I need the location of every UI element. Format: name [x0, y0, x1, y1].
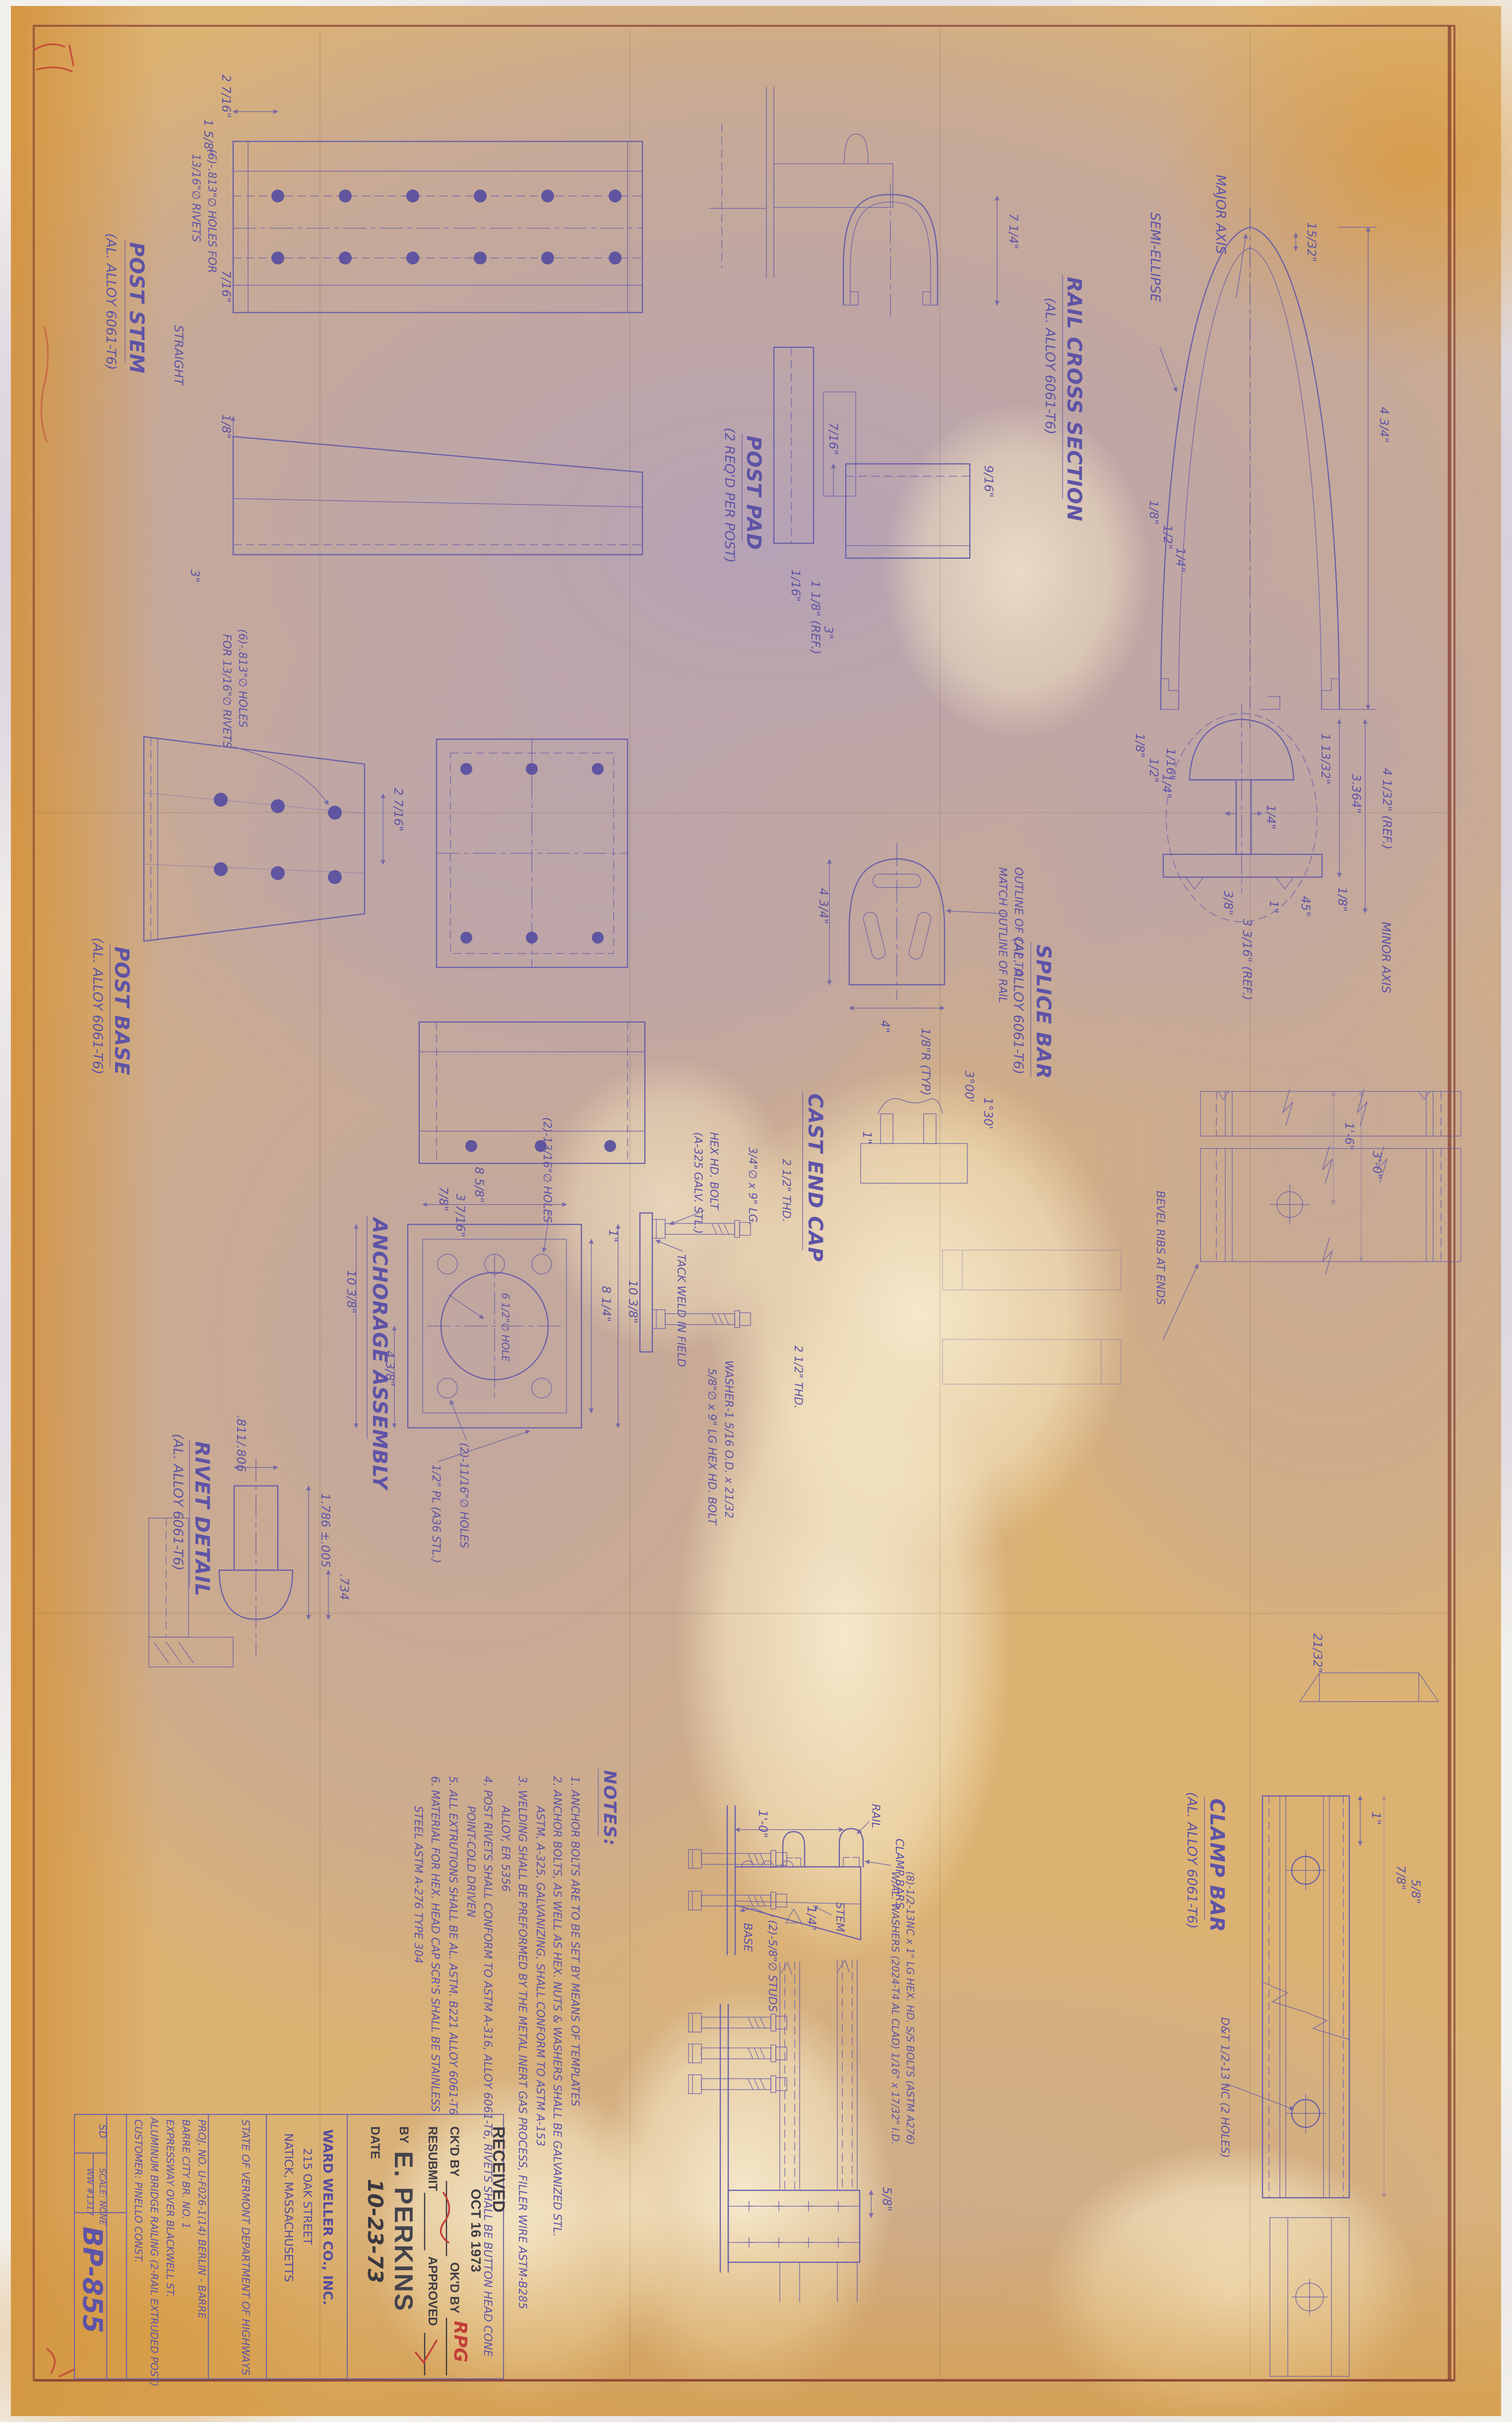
end-cap-dim-e: 1°30': [981, 1097, 995, 1129]
post-base-holes-note-1: (6)-.813"∅ HOLES: [236, 629, 249, 727]
clamp-bar-title: CLAMP BAR: [1205, 1798, 1228, 1932]
post-pad-subtitle: (2 REQ'D PER POST): [722, 428, 737, 563]
semi-ellipse-label: SEMI-ELLIPSE: [1147, 212, 1163, 302]
clamp-dim-b: 7/8": [1394, 1865, 1408, 1890]
clamp-dim-a: 1": [1369, 1812, 1383, 1825]
rivet-material: (AL. ALLOY 6061-T6): [170, 1434, 186, 1571]
note-line-1: 1. ANCHOR BOLTS ARE TO BE SET BY MEANS O…: [568, 1776, 581, 2106]
ellipse-dim-a: 15/32": [1305, 222, 1319, 262]
ellipse-dim-f: 1/4": [1160, 774, 1174, 799]
note-line-3: ASTM, A-325, GALVANIZING, SHALL CONFORM …: [534, 1805, 546, 2146]
anchorage-thd-2: 2 1/2" THD.: [792, 1345, 804, 1408]
anchorage-dim-h: 10 3/8": [344, 1270, 358, 1314]
splice-dim-g: 45°: [1299, 896, 1313, 917]
clamp-bar-material: (AL. ALLOY 6061-T6): [1184, 1792, 1199, 1929]
view-base-plate-plan: [437, 739, 628, 967]
item-line-2: CUSTOMER: PINELLO CONST.: [132, 2119, 144, 2263]
ww-number: WW #1317: [85, 2168, 95, 2216]
splice-bar-title: SPLICE BAR: [1032, 945, 1055, 1079]
post-stem-material: (AL. ALLOY 6061-T6): [103, 233, 119, 370]
splice-dim-e: 3/8": [1221, 891, 1235, 915]
clamp-tap-note: D&T 1/2-13 NC (2 HOLES): [1218, 2017, 1231, 2158]
post-pad-dim-c: 9/16": [982, 465, 996, 498]
assembly-studs-note: (2)-5/8"∅ STUDS: [766, 1920, 778, 2012]
end-cap-dim-c: 1/8"R (TYP): [919, 1028, 933, 1096]
post-base-material: (AL. ALLOY 6061-T6): [90, 938, 105, 1075]
stamp-okd-by-value: RPG: [450, 2321, 470, 2362]
post-stem-holes-note-2: 13/16"∅ RIVETS: [189, 154, 202, 242]
note-line-5: ALLOY, ER 5356: [499, 1805, 511, 1892]
stamp-received-date: OCT 16 1973: [468, 2189, 484, 2272]
company-city: NATICK, MASSACHUSETTS: [282, 2133, 295, 2282]
anchorage-dim-c: 7/8": [437, 1187, 450, 1211]
project-line-2: BARRE CITY BR. NO. 1: [180, 2119, 192, 2229]
ellipse-dim-e: 1/2": [1147, 758, 1161, 783]
assembly-dim-a: 1'-0": [756, 1810, 770, 1838]
assembly-rail-label: RAIL: [869, 1804, 882, 1828]
stamp-by-value: E. PERKINS: [389, 2151, 418, 2312]
splice-bevel-note: BEVEL RIBS AT ENDS: [1154, 1191, 1166, 1305]
anchorage-holes2-note: (2)-13/16"∅ HOLES: [541, 1117, 553, 1223]
anchorage-dim-a: 8 5/8": [472, 1167, 486, 1203]
anchorage-dim-d: 10 3/8": [626, 1280, 640, 1324]
anchorage-washer-note: WASHER-1 5/16 O.D. x 21/32: [722, 1360, 735, 1518]
notes-heading: NOTES:: [600, 1770, 620, 1847]
post-stem-straight-label: STRAIGHT: [172, 325, 186, 386]
end-cap-dim-d: 3°00': [962, 1071, 976, 1102]
ellipse-dim-b: 4 3/4": [1377, 407, 1391, 443]
anchorage-dim-b: 3 7/16": [453, 1194, 467, 1237]
splice-dim-f: 1/8": [1335, 887, 1349, 912]
post-stem-dim-a: 2 7/16": [219, 74, 233, 118]
splice-dim-b: 3.364": [1349, 774, 1363, 814]
blueprint-sheet: 2 7/16" 1 5/8" 7/16" (6)-.813"∅ HOLES FO…: [0, 0, 1512, 2422]
rivet-dim-b: 1.786 ±.005: [318, 1493, 332, 1568]
end-cap-outline-note-2: MATCH OUTLINE OF RAIL: [996, 867, 1008, 1003]
note-line-2: 2. ANCHOR BOLTS, AS WELL AS HEX. NUTS & …: [551, 1776, 563, 2237]
post-stem-dim-e: 1/8": [219, 414, 233, 439]
anchorage-dim-e: 8 1/4": [599, 1286, 613, 1322]
rivet-dim-a: .811/.806: [234, 1415, 248, 1472]
splice-plan-dim-j: 1'-6": [1342, 1122, 1356, 1150]
rail-section-material: (AL. ALLOY 6061-T6): [1042, 298, 1058, 435]
post-pad-dim-a: 7/16": [826, 423, 840, 455]
note-line-8: 5. ALL EXTRUTIONS SHALL BE AL. ASTM. B22…: [446, 1776, 459, 2115]
anchorage-thd: 2 1/2" THD.: [780, 1159, 792, 1222]
rail-section-title: RAIL CROSS SECTION: [1063, 277, 1085, 521]
clamp-dim-c: 5/8": [1409, 1879, 1423, 1904]
post-base-holes-note-2: FOR 13/16"∅ RIVETS: [220, 634, 233, 748]
post-pad-dim-b: 1 1/8" (REF.): [809, 580, 822, 654]
note-line-7: POINT-COLD DRIVEN: [464, 1806, 477, 1917]
splice-dim-a: 1 13/32": [1319, 733, 1332, 784]
end-cap-dim-b: 4": [878, 1020, 892, 1033]
anchorage-bolt-note-2: (A-325 GALV. STL.): [692, 1132, 704, 1234]
rail-section-dim-c: 3": [821, 626, 835, 639]
sd-label: SD: [97, 2124, 109, 2138]
assembly-bolts-note-2: W/AL. WASHERS (2024-T4 AL CLAD) 1/16" x …: [889, 1871, 901, 2145]
post-pad-title: POST PAD: [742, 436, 765, 550]
blueprint-svg: 2 7/16" 1 5/8" 7/16" (6)-.813"∅ HOLES FO…: [0, 0, 1512, 2422]
company-street: 215 OAK STREET: [301, 2148, 314, 2245]
anchorage-dim-g: 1": [606, 1229, 620, 1242]
stamp-received: RECEIVED: [489, 2126, 508, 2213]
assembly-bolts-note-1: (8)-1/2-13NC x 1" LG HEX. HD. S/S BOLTS …: [904, 1871, 916, 2145]
note-line-10: STEEL ASTM A-276 TYPE 304: [412, 1806, 424, 1964]
post-stem-dim-c: 7/16": [219, 270, 233, 303]
anchorage-bolt-size: 3/4"∅ x 9" LG.: [746, 1147, 758, 1226]
drawing-number: BP-855: [77, 2227, 108, 2333]
stamp-ckd-by: CK'D BY: [447, 2126, 461, 2177]
rail-section-dim-a: 7 1/4": [1007, 213, 1020, 250]
stamp-date-label: DATE: [368, 2126, 382, 2159]
scale-label: SCALE: NONE: [97, 2168, 107, 2225]
ellipse-dim-d: 1/8": [1133, 733, 1147, 758]
anchorage-holes3-note: (2)-11/16"∅ HOLES: [457, 1443, 470, 1548]
anchorage-hole-label: 6 1/2"∅ HOLE: [500, 1293, 511, 1362]
project-line-3: EXPRESSWAY OVER BLACKWELL ST.: [164, 2119, 176, 2297]
anchorage-tack-weld: TACK WELD IN FIELD: [675, 1254, 687, 1367]
item-line-1: ALUMINUM BRIDGE RAILING (2-RAIL EXTRUDED…: [148, 2116, 160, 2387]
rivet-title: RIVET DETAIL: [190, 1441, 213, 1596]
post-stem-title: POST STEM: [125, 242, 148, 374]
stamp-resubmit: RESUBMIT: [426, 2126, 440, 2191]
agency-name: STATE OF VERMONT DEPARTMENT OF HIGHWAYS: [240, 2119, 252, 2375]
rivet-dim-c: .734: [337, 1574, 351, 1600]
stamp-by: BY: [397, 2126, 411, 2144]
clamp-dim-d: 21/32": [1311, 1633, 1324, 1673]
end-cap-dim-f: 1": [860, 1131, 874, 1144]
assembly-stem-label: STEM: [833, 1902, 846, 1932]
rail-section-dim-d: 1/8": [1147, 500, 1161, 525]
post-stem-holes-note-1: (6)-.813"∅ HOLES FOR: [205, 149, 218, 273]
splice-minor-axis: MINOR AXIS: [1379, 922, 1393, 993]
assembly-base-label: BASE: [741, 1923, 754, 1952]
splice-dim-h: 1": [1267, 900, 1281, 913]
project-line-1: PROJ. NO. U-F026-1(14) BERLIN - BARRE: [196, 2119, 208, 2319]
splice-dim-d: 1/4": [1264, 805, 1278, 829]
rail-section-dim-e: 1/2": [1161, 525, 1175, 550]
rail-section-dim-b: 1/16": [789, 570, 803, 602]
rail-section-dim-f: 1/4": [1174, 548, 1188, 573]
splice-plan-dim-k: 3'-0": [1370, 1151, 1384, 1179]
post-stem-dim-d: 3": [188, 570, 202, 582]
assembly-weld-note: 1/4": [805, 1906, 819, 1931]
post-base-dim-a: 2 7/16": [391, 788, 405, 831]
end-cap-title: CAST END CAP: [804, 1093, 826, 1262]
anchorage-plate-note: 1/2" PL (A36 STL.): [430, 1465, 442, 1563]
major-axis-label: MAJOR AXIS: [1213, 175, 1228, 254]
post-base-title: POST BASE: [110, 947, 133, 1076]
end-cap-dim-a: 4 3/4": [817, 888, 830, 924]
note-line-4: 3. WELDING SHALL BE PREFORMED BY THE MET…: [516, 1776, 528, 2309]
stamp-okd-by: OK'D BY: [447, 2262, 461, 2313]
splice-dim-i: 3 3/16" (REF.): [1240, 919, 1254, 1000]
anchorage-title: ANCHORAGE ASSEMBLY: [368, 1216, 391, 1491]
splice-bar-material: (AL. ALLOY 6061-T6): [1010, 938, 1026, 1075]
stamp-approved: APPROVED: [426, 2256, 440, 2326]
assembly-dim-b: 5/8": [880, 2187, 894, 2212]
anchorage-stud-note: 5/8"∅ x 9" LG HEX HD. BOLT: [705, 1368, 718, 1526]
note-line-9: 6. MATERIAL FOR HEX. HEAD CAP SCR'S SHAL…: [429, 1776, 441, 2112]
splice-dim-c: 4 1/32" (REF.): [1380, 768, 1394, 849]
stamp-date-value: 10-23-73: [363, 2179, 387, 2283]
anchorage-bolt-note-1: HEX HD. BOLT: [707, 1132, 720, 1211]
company-name: WARD WELLER CO., INC.: [320, 2129, 335, 2305]
